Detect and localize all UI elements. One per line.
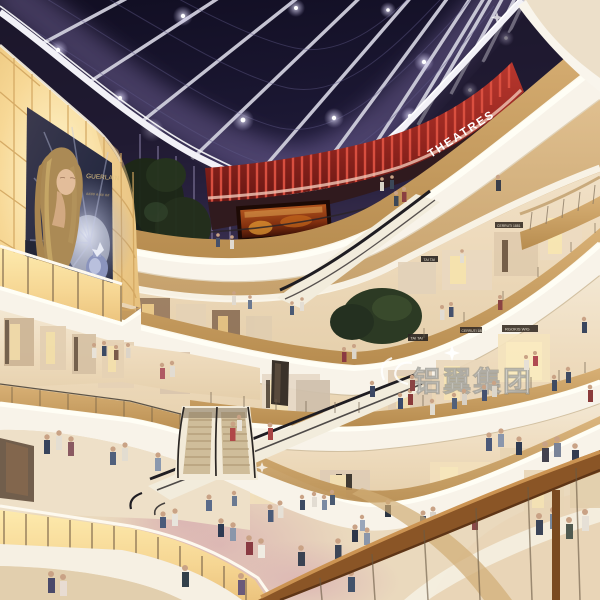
svg-text:铝翼集团: 铝翼集团 [413, 366, 533, 397]
svg-text:CERRUTI 1881: CERRUTI 1881 [462, 329, 486, 333]
svg-text:TAI TAI: TAI TAI [411, 337, 423, 341]
svg-text:RGOKIS WIG: RGOKIS WIG [505, 327, 530, 332]
svg-text:CERRUTI 1881: CERRUTI 1881 [497, 224, 521, 228]
svg-text:TAI TAI: TAI TAI [424, 258, 436, 262]
